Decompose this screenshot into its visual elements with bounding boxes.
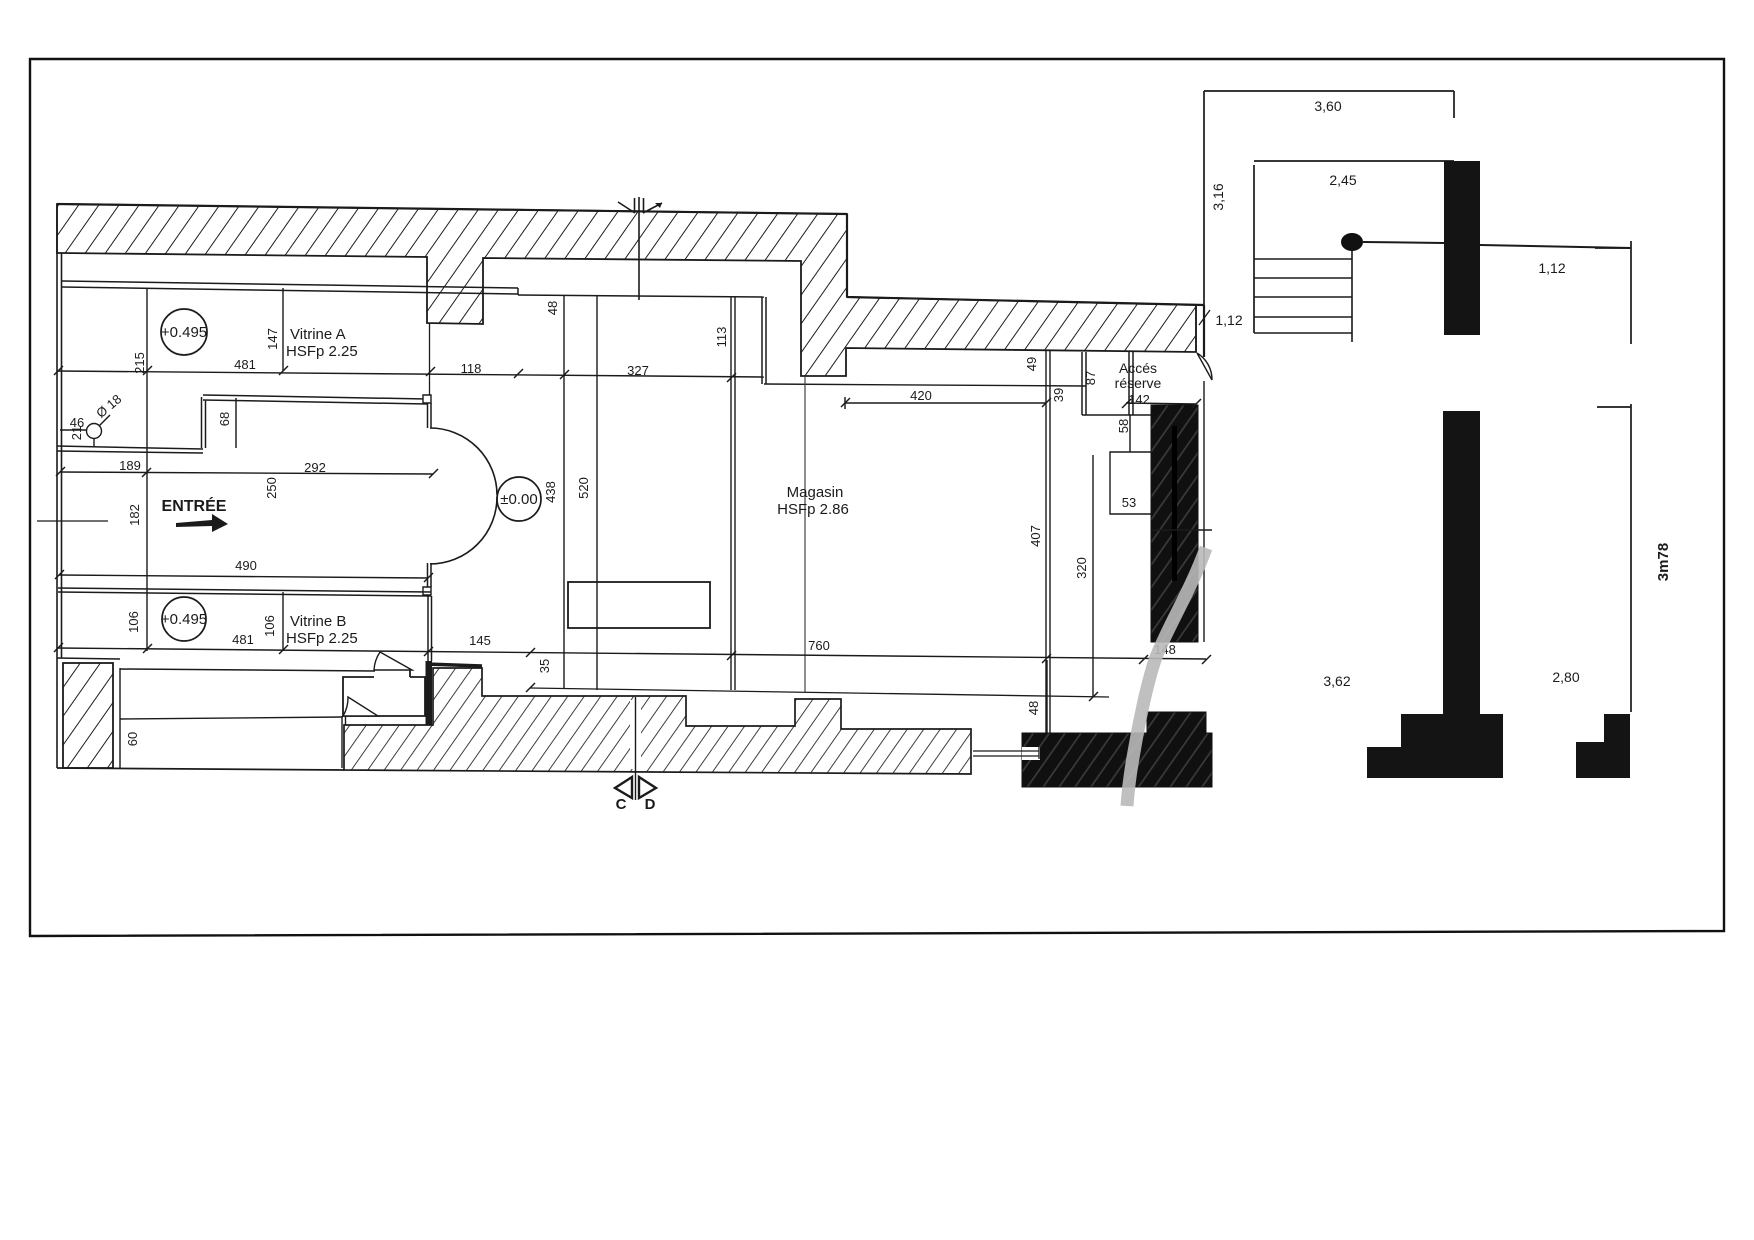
svg-text:215: 215: [132, 352, 147, 374]
svg-text:C: C: [616, 796, 627, 813]
svg-text:420: 420: [910, 388, 932, 403]
svg-text:481: 481: [234, 357, 256, 372]
svg-text:327: 327: [627, 363, 649, 378]
svg-text:Magasin: Magasin: [787, 484, 844, 501]
svg-text:145: 145: [469, 633, 491, 648]
svg-text:+0.495: +0.495: [161, 324, 207, 341]
svg-text:réserve: réserve: [1115, 375, 1162, 391]
svg-text:760: 760: [808, 638, 830, 653]
svg-text:58: 58: [1116, 419, 1131, 433]
svg-text:+0.495: +0.495: [161, 611, 207, 628]
svg-text:49: 49: [1024, 357, 1039, 371]
svg-text:520: 520: [576, 477, 591, 499]
svg-text:182: 182: [127, 504, 142, 526]
svg-text:35: 35: [537, 659, 552, 673]
svg-text:320: 320: [1074, 557, 1089, 579]
svg-text:106: 106: [262, 615, 277, 637]
svg-text:HSFp 2.25: HSFp 2.25: [286, 343, 358, 360]
svg-text:Vitrine B: Vitrine B: [290, 613, 346, 630]
svg-text:113: 113: [714, 327, 729, 348]
svg-text:48: 48: [1026, 701, 1041, 715]
svg-text:HSFp 2.25: HSFp 2.25: [286, 630, 358, 647]
svg-text:189: 189: [119, 458, 141, 473]
svg-text:68: 68: [217, 412, 232, 426]
svg-text:1,12: 1,12: [1538, 260, 1565, 276]
svg-text:53: 53: [1122, 495, 1136, 510]
svg-text:60: 60: [125, 732, 140, 746]
svg-text:3,62: 3,62: [1323, 673, 1350, 689]
svg-text:HSFp 2.86: HSFp 2.86: [777, 501, 849, 518]
svg-text:292: 292: [304, 460, 326, 475]
svg-text:407: 407: [1028, 525, 1043, 547]
svg-text:21: 21: [69, 426, 84, 440]
svg-text:2,80: 2,80: [1552, 669, 1579, 685]
svg-text:438: 438: [543, 481, 558, 503]
svg-text:250: 250: [264, 477, 279, 499]
svg-text:147: 147: [265, 328, 280, 350]
svg-text:3,60: 3,60: [1314, 98, 1341, 114]
svg-text:ENTRÉE: ENTRÉE: [162, 496, 227, 515]
svg-text:48: 48: [545, 301, 560, 315]
svg-text:106: 106: [126, 611, 141, 633]
svg-text:118: 118: [461, 361, 482, 376]
svg-text:39: 39: [1051, 388, 1066, 402]
svg-text:481: 481: [232, 632, 254, 647]
svg-text:2,45: 2,45: [1329, 172, 1356, 188]
svg-text:3,16: 3,16: [1210, 183, 1226, 210]
svg-text:±0.00: ±0.00: [500, 491, 537, 508]
svg-text:Vitrine A: Vitrine A: [290, 326, 346, 343]
svg-text:1,12: 1,12: [1215, 312, 1242, 328]
svg-text:490: 490: [235, 558, 257, 573]
svg-text:D: D: [645, 796, 656, 813]
svg-text:3m78: 3m78: [1655, 543, 1672, 581]
svg-text:Accés: Accés: [1119, 360, 1157, 376]
